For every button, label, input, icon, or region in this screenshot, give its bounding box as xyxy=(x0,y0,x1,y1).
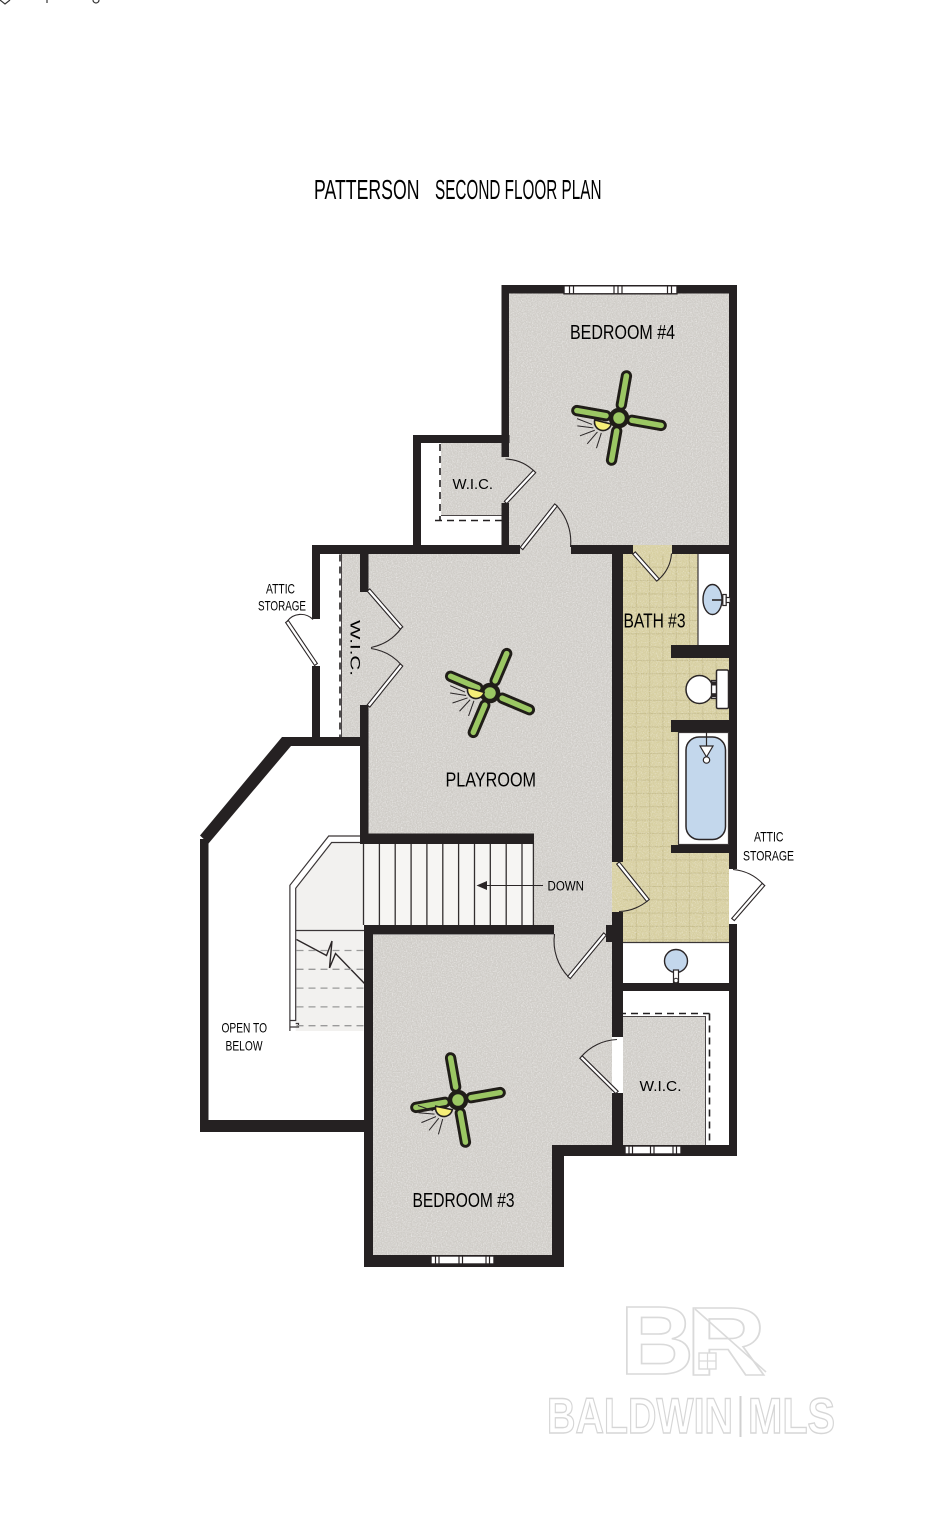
svg-text:PLAYROOM: PLAYROOM xyxy=(446,769,537,792)
svg-text:BALDWIN: BALDWIN xyxy=(547,1388,733,1444)
svg-text:SECOND FLOOR PLAN: SECOND FLOOR PLAN xyxy=(435,174,602,205)
svg-text:MLS: MLS xyxy=(748,1388,835,1444)
svg-text:STORAGE: STORAGE xyxy=(743,848,794,864)
svg-text:W.I.C.: W.I.C. xyxy=(453,477,494,493)
svg-text:ATTIC: ATTIC xyxy=(754,829,784,845)
svg-text:W.I.C.: W.I.C. xyxy=(640,1079,682,1095)
svg-text:BEDROOM #4: BEDROOM #4 xyxy=(570,321,675,344)
svg-text:BELOW: BELOW xyxy=(226,1038,264,1054)
svg-text:ATTIC: ATTIC xyxy=(266,581,295,597)
svg-text:OPEN TO: OPEN TO xyxy=(222,1020,268,1036)
svg-text:STORAGE: STORAGE xyxy=(258,598,306,614)
svg-text:W.I.C.: W.I.C. xyxy=(348,620,364,676)
svg-text:PATTERSON: PATTERSON xyxy=(314,174,420,205)
svg-text:BATH #3: BATH #3 xyxy=(624,611,686,633)
svg-text:R: R xyxy=(686,1287,766,1396)
svg-text:BEDROOM #3: BEDROOM #3 xyxy=(413,1189,515,1212)
svg-text:DOWN: DOWN xyxy=(548,879,585,894)
svg-text:B: B xyxy=(620,1286,694,1395)
